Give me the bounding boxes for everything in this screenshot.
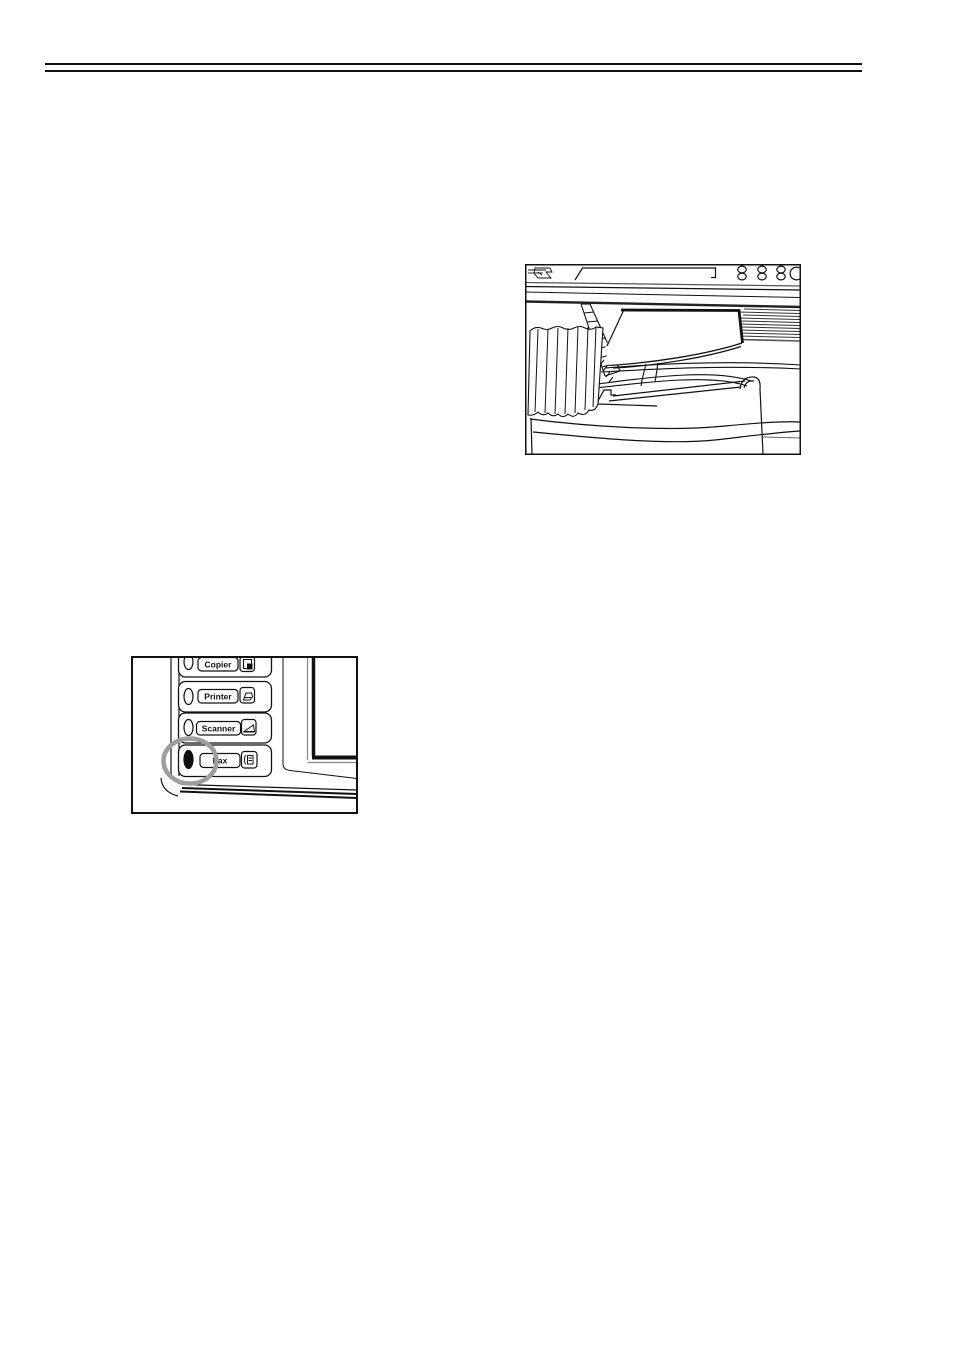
fax-icon (242, 752, 258, 769)
printer-key-label: Printer (204, 692, 232, 702)
machine-figure (525, 264, 801, 455)
control-panel-drawing: Copier Printer Scanner Fax (131, 656, 358, 814)
paper-stack (528, 327, 603, 417)
copier-icon (240, 657, 255, 672)
header-rule-bottom (45, 70, 862, 72)
fax-led (184, 751, 193, 769)
control-panel-figure: Copier Printer Scanner Fax (131, 656, 358, 814)
header-rule-top (45, 63, 862, 65)
copier-key-label: Copier (205, 660, 233, 670)
machine-figure-drawing (525, 264, 801, 455)
manual-page: Copier Printer Scanner Fax (0, 0, 954, 1348)
printer-icon (240, 688, 255, 704)
scanner-icon (242, 720, 257, 736)
scanner-key-label: Scanner (202, 724, 236, 734)
